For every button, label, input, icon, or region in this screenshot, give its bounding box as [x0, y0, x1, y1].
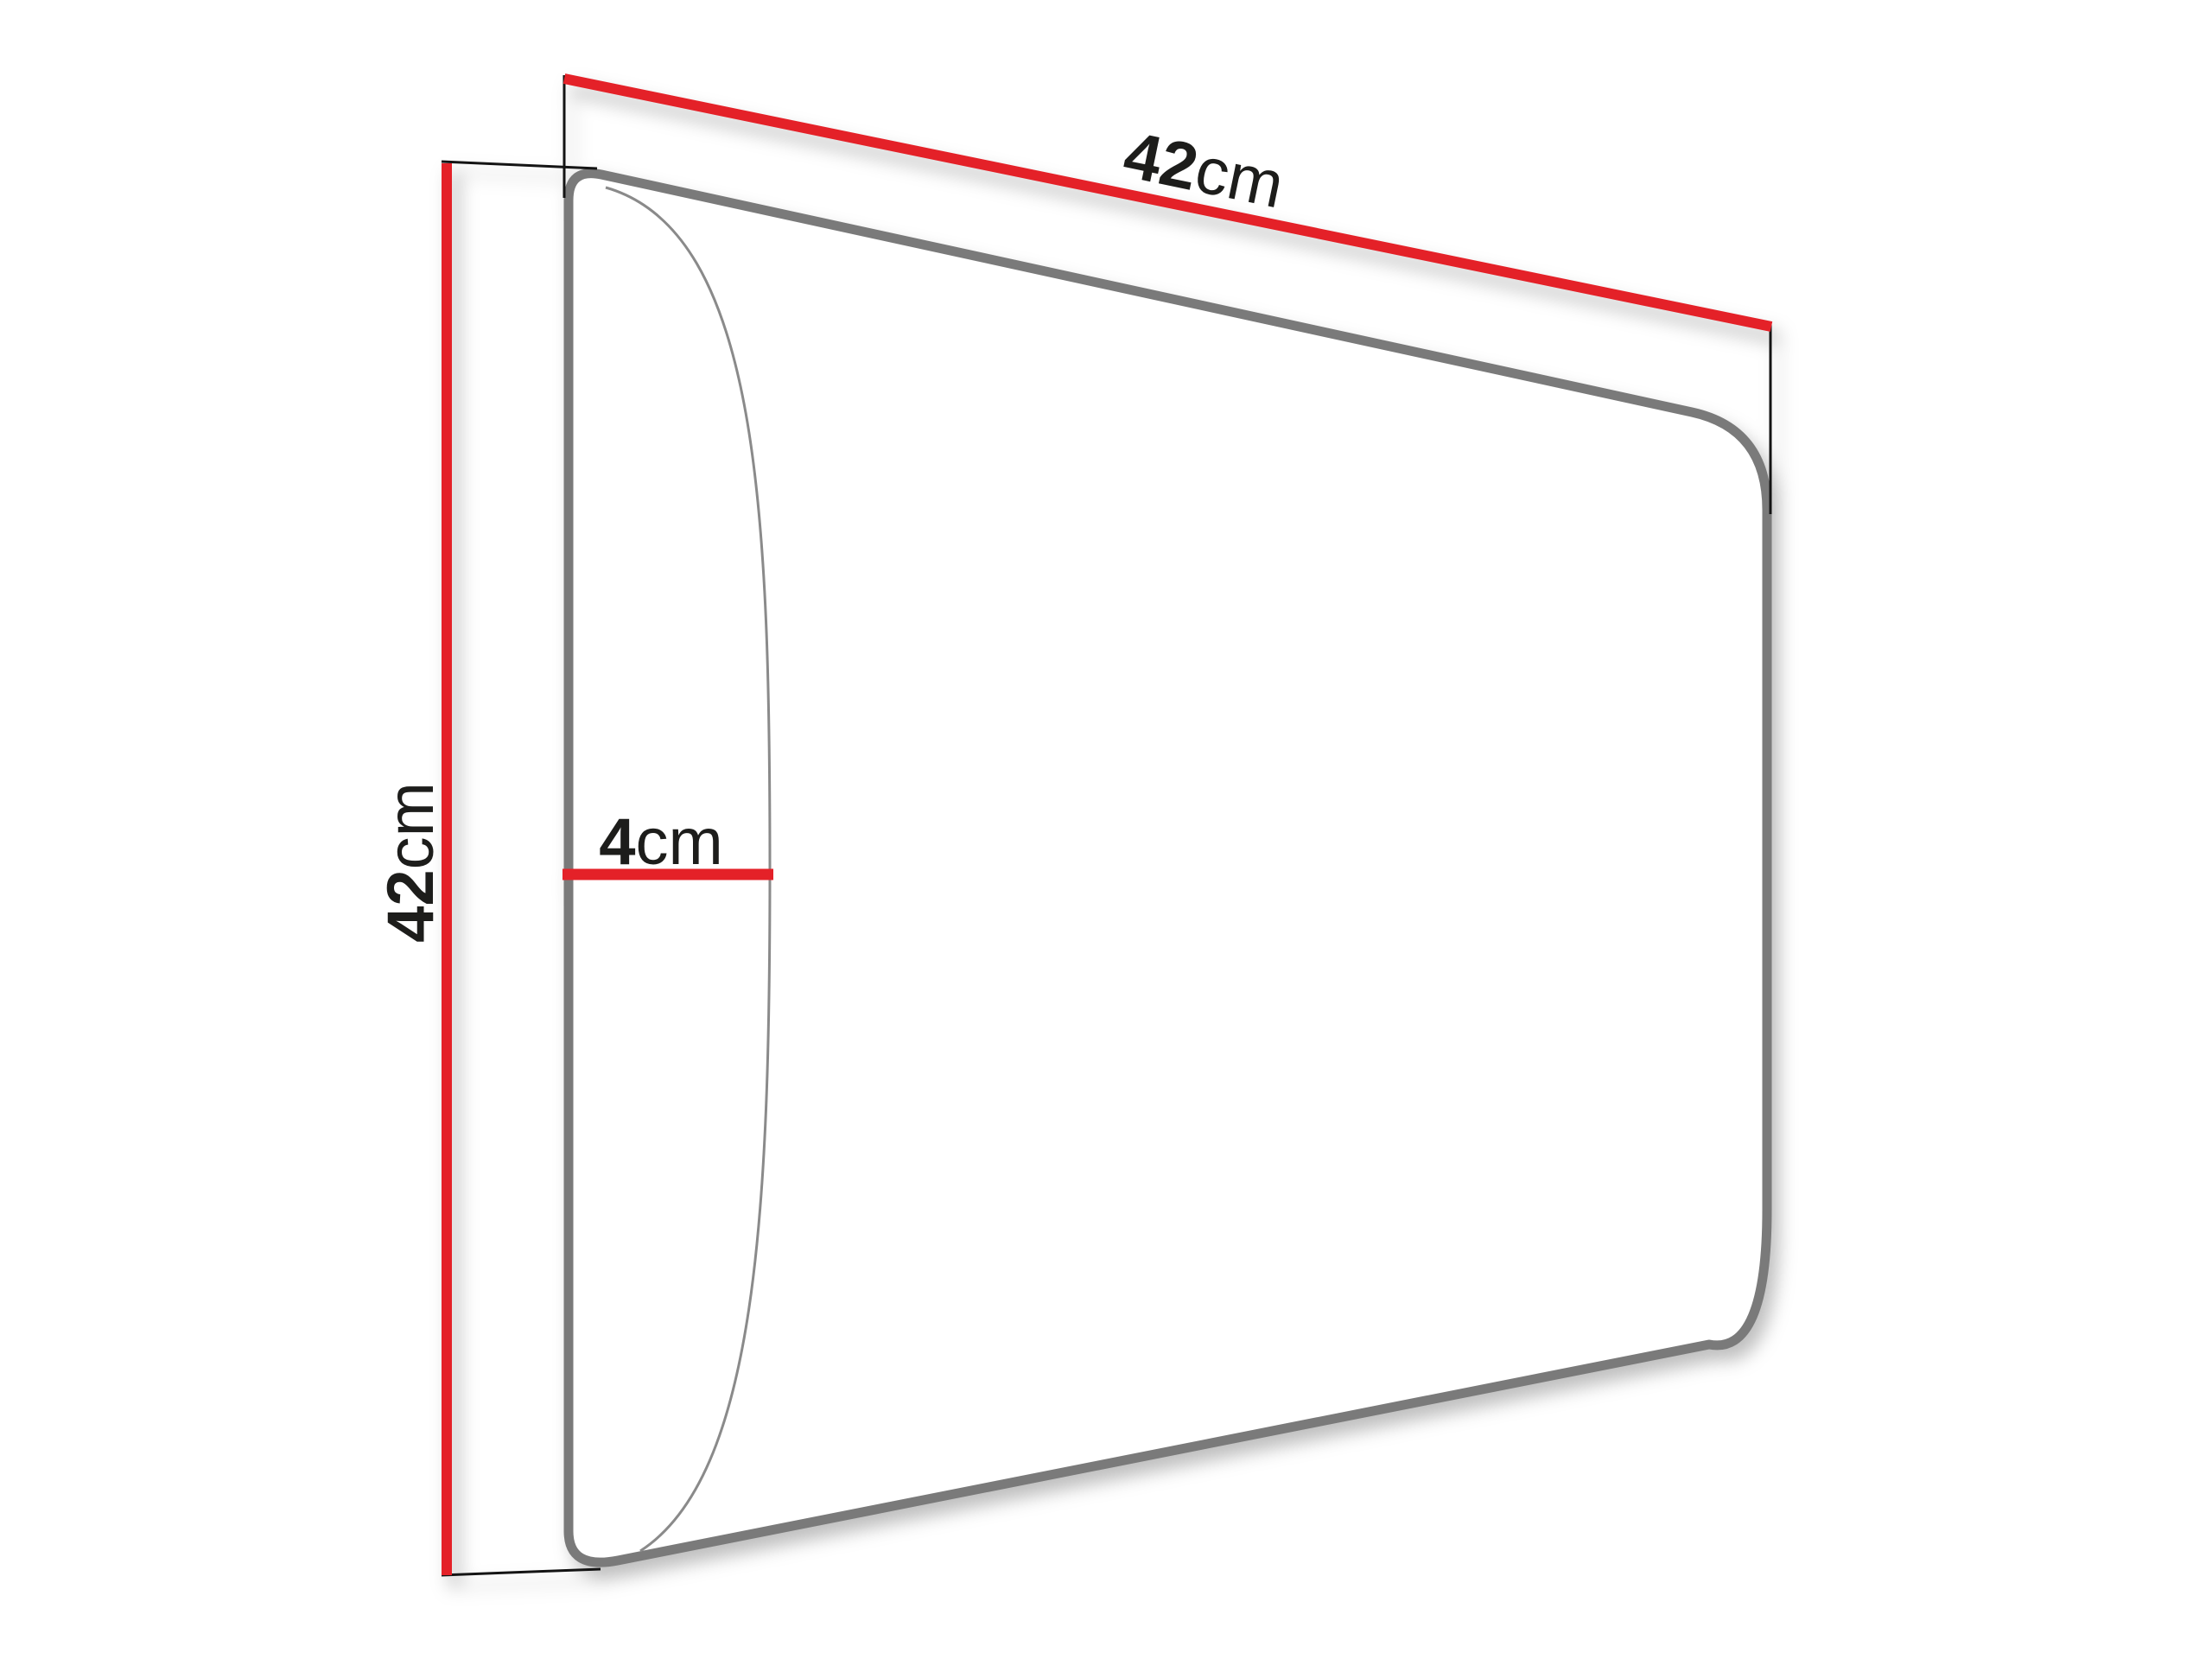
- extension-line-bottom-left: [442, 1569, 601, 1575]
- height-dimension-label: 42cm: [374, 782, 448, 943]
- height-value: 42: [374, 869, 448, 943]
- depth-dimension-label: 4cm: [599, 805, 723, 879]
- depth-value: 4: [599, 805, 635, 879]
- diagram-canvas: 42cm 42cm 4cm: [0, 0, 2212, 1659]
- depth-unit: cm: [635, 805, 722, 879]
- panel-outline: [569, 174, 1767, 1563]
- extension-line-top-left: [442, 162, 597, 168]
- panel-dimension-diagram: 42cm 42cm 4cm: [0, 0, 2212, 1659]
- height-unit: cm: [374, 782, 448, 869]
- width-dimension-label: 42cm: [1118, 118, 1290, 223]
